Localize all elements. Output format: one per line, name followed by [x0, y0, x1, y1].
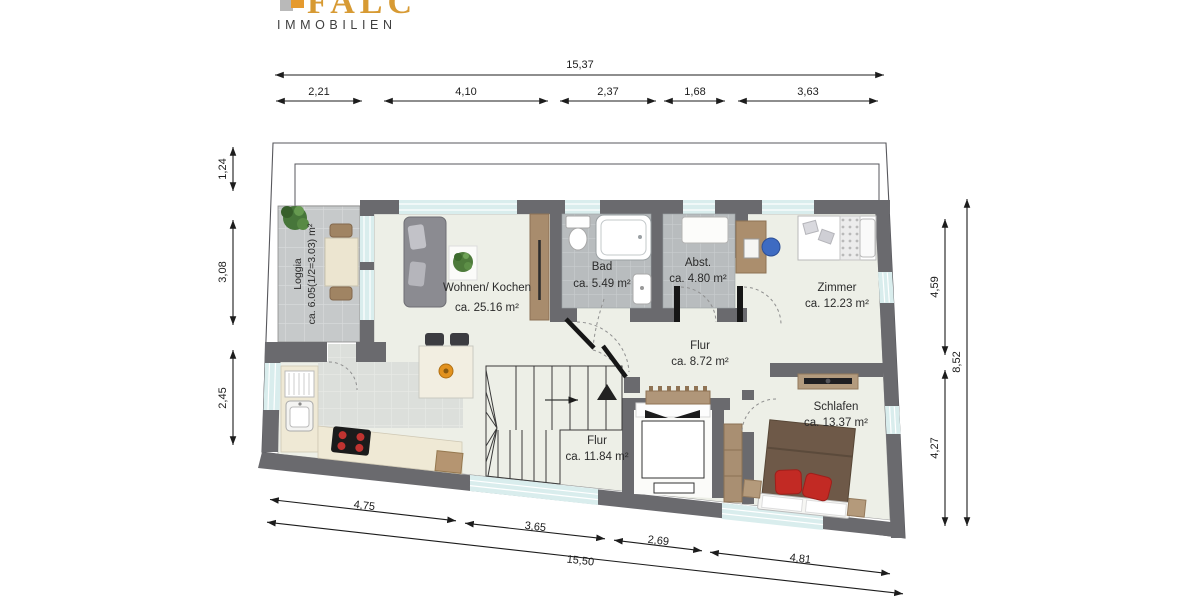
cooktop-icon — [331, 426, 372, 456]
window-icon — [264, 363, 282, 410]
room-label: Flur — [587, 435, 607, 447]
room-label: Zimmer — [818, 282, 857, 294]
hall-wardrobe-icon — [724, 424, 742, 502]
room-area-label: ca. 25.16 m² — [455, 302, 519, 314]
wall-loggia-south-right — [356, 342, 386, 362]
dimension-label: 4,81 — [789, 552, 812, 566]
window-icon — [683, 200, 715, 214]
wall-stair-stub — [624, 377, 640, 393]
brand-logo: FALC IMMOBILIEN — [277, 0, 417, 32]
wardrobe-icon — [530, 214, 549, 320]
window-icon — [565, 200, 600, 214]
wall-schlafen-west-stub — [742, 390, 754, 400]
dimension-label: 1,68 — [684, 86, 705, 98]
room-area-label: ca. 4.80 m² — [669, 273, 727, 285]
room-area-label: ca. 11.84 m² — [565, 451, 628, 463]
room-area-label: ca. 5.49 m² — [573, 278, 631, 290]
room-abstellraum: Abst. ca. 4.80 m² — [663, 214, 735, 308]
dimension-label: 8,52 — [951, 351, 963, 372]
door-leaf-icon — [737, 286, 743, 322]
dimension-label: 3,08 — [217, 261, 229, 282]
dimension-label: 4,10 — [455, 86, 476, 98]
room-bad: Bad ca. 5.49 m² — [562, 214, 651, 308]
window-icon — [399, 200, 517, 214]
rug-plant-icon — [449, 246, 477, 280]
nightstand-icon — [743, 479, 762, 498]
dimension-label: 15,37 — [566, 59, 594, 71]
elevator-icon — [634, 403, 712, 498]
dimension-label: 4,59 — [929, 276, 941, 297]
dimension-label: 2,37 — [597, 86, 618, 98]
window-icon — [360, 270, 374, 320]
wall-shaft-west — [622, 398, 634, 494]
door-leaf-icon — [674, 286, 680, 322]
loggia-door-threshold — [328, 344, 356, 362]
dimension-label: 1,24 — [217, 158, 229, 179]
room-area-label: ca. 8.72 m² — [671, 356, 729, 368]
single-bed-icon — [798, 216, 876, 260]
sink-icon — [633, 274, 651, 304]
window-icon — [878, 272, 894, 303]
brand-subtitle: IMMOBILIEN — [277, 18, 397, 32]
room-label: Loggia — [292, 258, 304, 290]
wall-bad-abst — [651, 214, 663, 322]
dimension-label: 2,69 — [647, 534, 670, 548]
desk-chair-icon — [762, 238, 780, 256]
room-area-label: ca. 13.37 m² — [804, 417, 868, 429]
floor-plan-canvas: FALC IMMOBILIEN Loggia ca. 6.05(1/2=3.03… — [0, 0, 1200, 600]
dimension-label: 3,65 — [524, 520, 547, 534]
dimension-label: 15,50 — [566, 554, 595, 569]
window-icon — [360, 216, 374, 262]
sofa-icon — [404, 217, 446, 307]
window-icon — [885, 406, 901, 434]
cutting-board-icon — [435, 451, 463, 474]
wall-wohnen-bad — [550, 214, 562, 308]
wall-abst-south-left — [663, 308, 675, 322]
wall-loggia-south-left — [266, 342, 327, 362]
kitchen-sink-icon — [286, 401, 313, 431]
room-label: Wohnen/ Kochen — [443, 282, 531, 294]
room-label: Bad — [592, 261, 612, 273]
room-loggia: Loggia ca. 6.05(1/2=3.03) m² — [278, 206, 360, 342]
loggia-chair-icon — [330, 224, 352, 237]
room-area-label: ca. 6.05(1/2=3.03) m² — [306, 223, 318, 324]
room-label: Flur — [690, 340, 710, 352]
roof-edge-outline — [295, 164, 879, 206]
dimension-label: 2,21 — [308, 86, 329, 98]
dimension-label: 4,27 — [929, 437, 941, 458]
room-label: Abst. — [685, 257, 711, 269]
window-icon — [762, 200, 814, 214]
room-label: Schlafen — [814, 401, 859, 413]
loggia-table-icon — [325, 238, 358, 286]
nightstand-icon — [847, 498, 866, 517]
dimension-label: 2,45 — [217, 387, 229, 408]
tv-sideboard-icon — [798, 374, 858, 389]
washing-machine-icon — [682, 217, 728, 243]
wall-bad-south-left — [550, 308, 577, 322]
dimension-label: 3,63 — [797, 86, 818, 98]
room-area-label: ca. 12.23 m² — [805, 298, 869, 310]
logo-mark-orange-square — [291, 0, 304, 8]
bathtub-icon — [596, 215, 651, 260]
dimension-label: 4,75 — [353, 499, 376, 513]
loggia-chair-icon — [330, 287, 352, 300]
floor-plan-page: FALC IMMOBILIEN Loggia ca. 6.05(1/2=3.03… — [0, 0, 1200, 600]
wall-shaft-east — [712, 398, 724, 498]
